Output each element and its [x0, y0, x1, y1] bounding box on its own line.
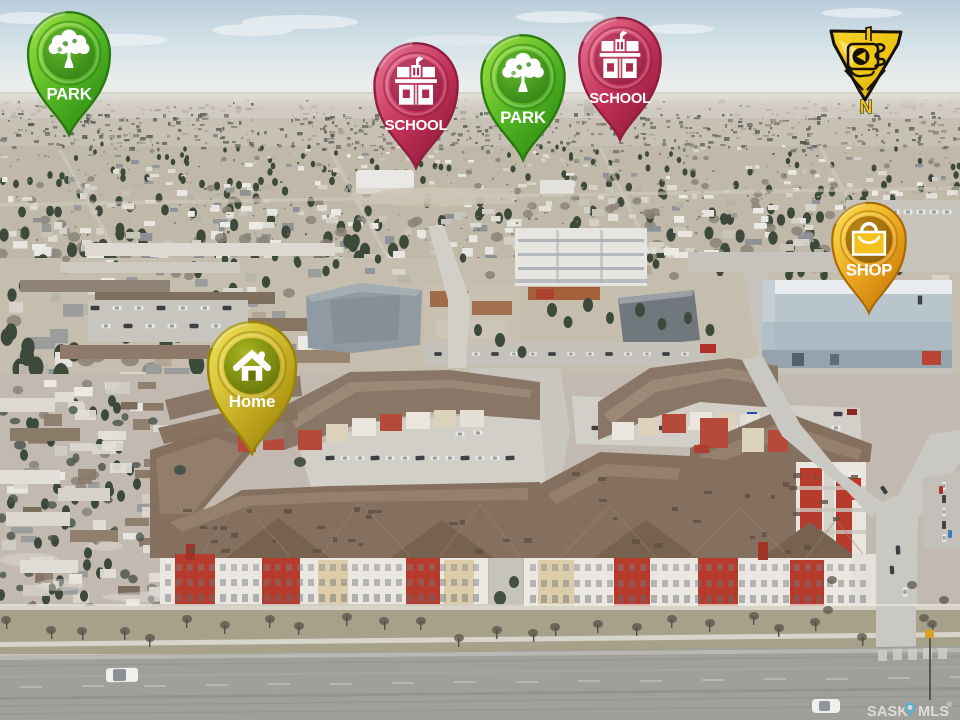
svg-text:MLS: MLS	[918, 704, 949, 720]
svg-text:PARK: PARK	[46, 85, 91, 104]
svg-text:Home: Home	[229, 392, 275, 411]
svg-text:N: N	[860, 97, 873, 117]
svg-text:SHOP: SHOP	[846, 260, 892, 279]
svg-text:SCHOOL: SCHOOL	[385, 117, 448, 134]
svg-text:PARK: PARK	[500, 108, 547, 127]
svg-text:SCHOOL: SCHOOL	[589, 91, 651, 107]
svg-text:SASK: SASK	[867, 704, 908, 720]
svg-text:®: ®	[947, 701, 953, 709]
